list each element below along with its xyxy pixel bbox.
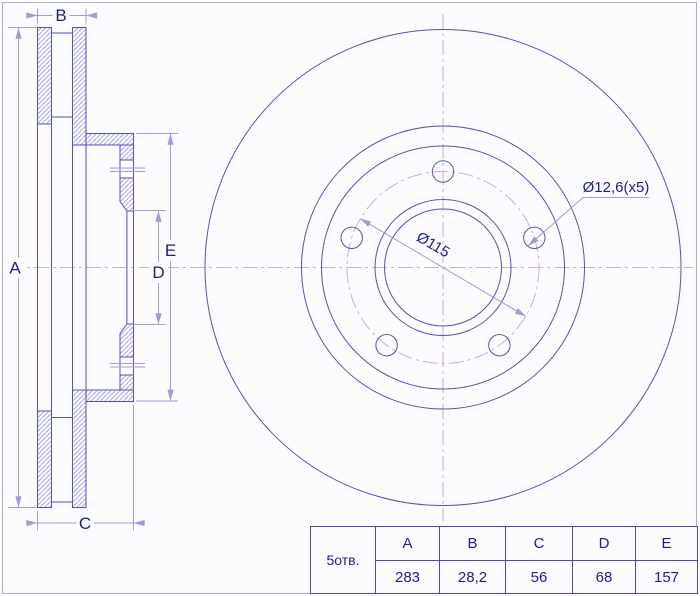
leader-line xyxy=(528,198,649,247)
bolt-hole-label: Ø12,6(x5) xyxy=(583,179,650,196)
hatch-region xyxy=(120,324,134,357)
hatch-region xyxy=(73,390,87,508)
dimension-a: A xyxy=(6,28,36,508)
dimension-label-b: B xyxy=(55,6,66,25)
hatch-region xyxy=(120,178,134,211)
dimension-b: B xyxy=(31,6,93,25)
spec-table-header: D xyxy=(572,527,635,561)
bolt-circle-label: Ø115 xyxy=(413,229,452,262)
spec-table-header: A xyxy=(375,527,439,561)
spec-table-value: 157 xyxy=(635,561,697,593)
spec-table-value: 283 xyxy=(375,561,439,593)
dimension-label-a: A xyxy=(9,259,21,278)
spec-table-row-label: 5отв. xyxy=(311,527,375,593)
hatch-region xyxy=(38,28,52,125)
spec-table: 5отв. A B C D E 283 28,2 56 68 157 xyxy=(310,526,698,594)
dimension-label-e: E xyxy=(165,241,176,260)
bolt-hole-callout: Ø12,6(x5) xyxy=(528,179,649,246)
spec-table-value: 68 xyxy=(572,561,635,593)
drawing-frame xyxy=(3,3,697,594)
brake-disc-technical-drawing: A B C D E xyxy=(0,0,700,596)
hatch-region xyxy=(120,145,134,160)
dimension-label-d: D xyxy=(152,263,164,282)
spec-table-header: C xyxy=(505,527,572,561)
hatch-region xyxy=(38,411,52,508)
hatch-region xyxy=(120,375,134,390)
spec-table-value: 28,2 xyxy=(439,561,505,593)
hatch-region xyxy=(73,28,87,146)
hatch-region xyxy=(86,134,134,146)
spec-table-value: 56 xyxy=(505,561,572,593)
spec-table-header: E xyxy=(635,527,697,561)
hatch-region xyxy=(86,390,134,402)
spec-table-header: B xyxy=(439,527,505,561)
dimension-label-c: C xyxy=(79,514,91,533)
bolt-hole xyxy=(524,227,545,248)
